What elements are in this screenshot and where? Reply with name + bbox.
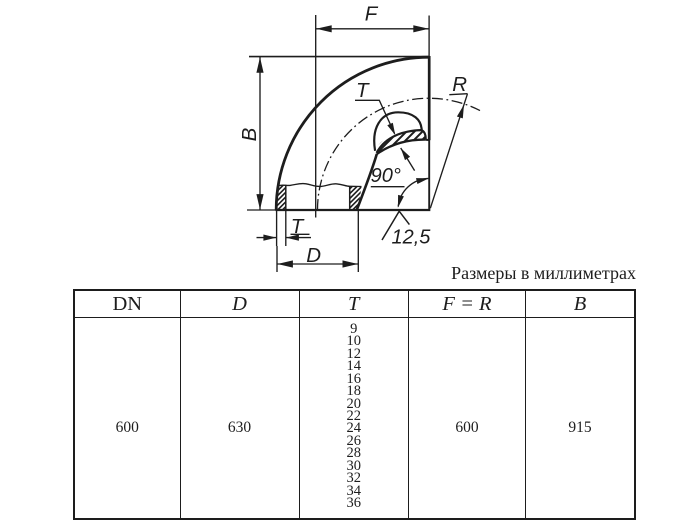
svg-text:90°: 90° <box>371 165 401 187</box>
svg-text:D: D <box>306 244 321 267</box>
svg-text:R: R <box>452 73 467 96</box>
svg-text:B: B <box>238 128 261 142</box>
svg-text:T: T <box>356 79 370 102</box>
svg-text:T: T <box>291 215 305 238</box>
svg-text:12,5: 12,5 <box>392 227 432 249</box>
svg-text:F: F <box>365 3 379 26</box>
